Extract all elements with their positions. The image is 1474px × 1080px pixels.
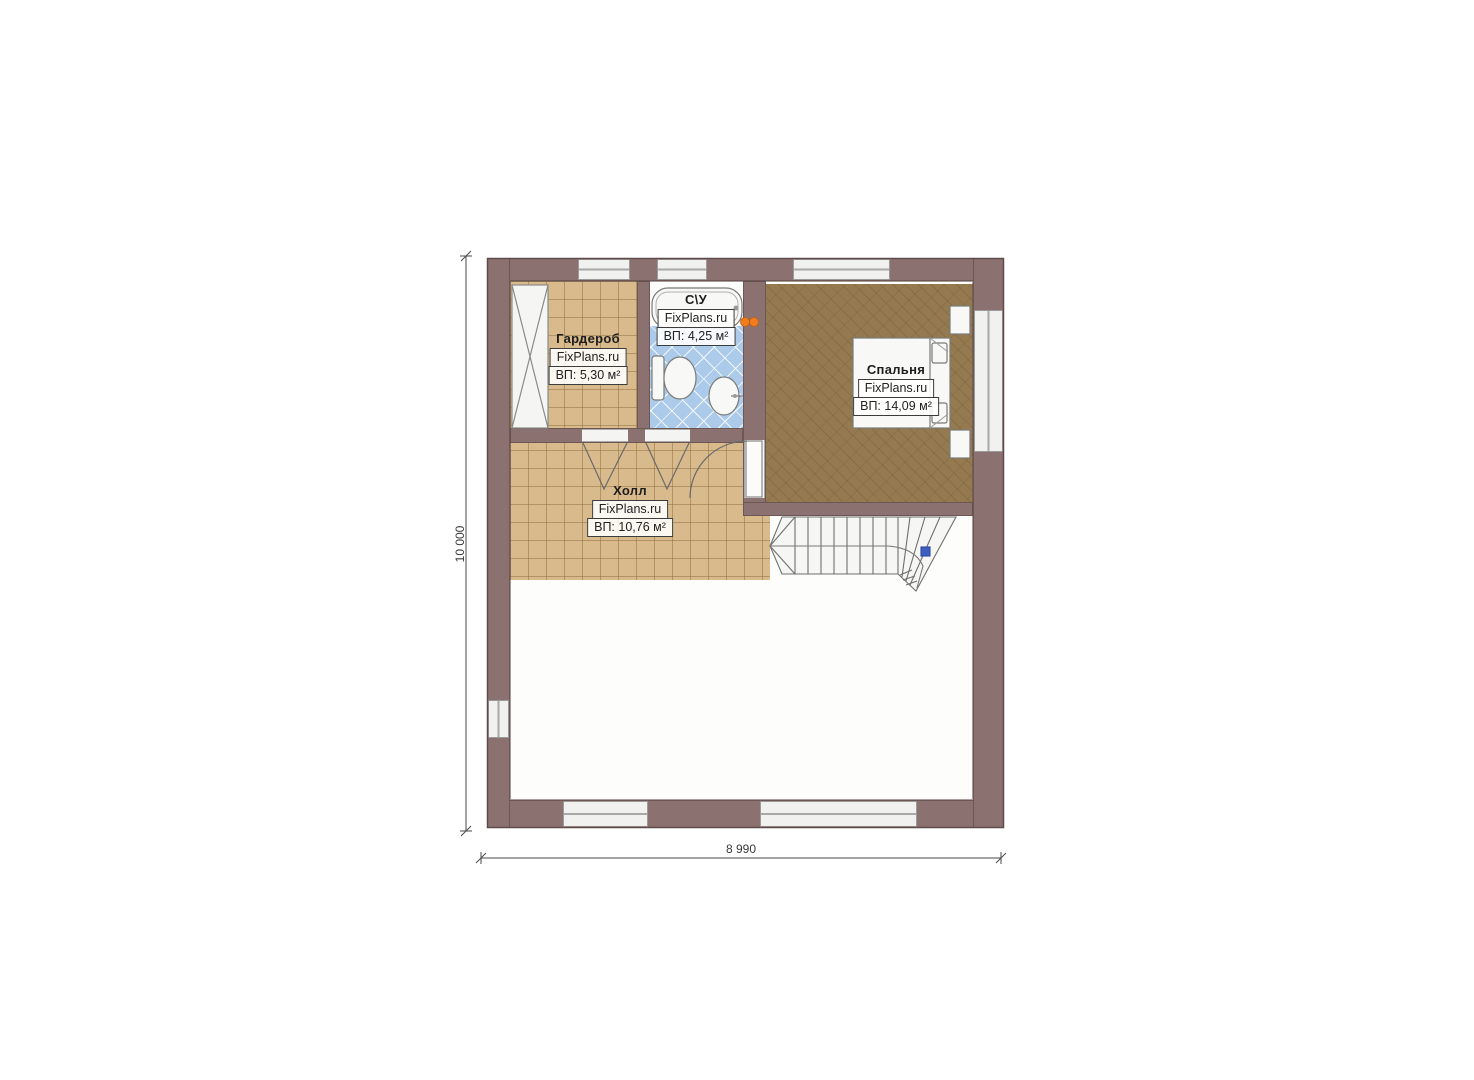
dimension-label-width: 8 990 <box>711 842 771 856</box>
wall-bedroom-bottom <box>743 502 973 516</box>
door-opening-bedroom <box>744 440 765 498</box>
hall-area: ВП: 10,76 м² <box>587 518 673 537</box>
bedroom-watermark: FixPlans.ru <box>858 379 935 398</box>
door-opening-wardrobe <box>582 429 628 442</box>
window-right-bedroom <box>974 310 1003 452</box>
bathroom-area: ВП: 4,25 м² <box>657 327 736 346</box>
floor-plan-canvas: Гардероб FixPlans.ru ВП: 5,30 м² С\У Fix… <box>0 0 1474 1080</box>
wardrobe-watermark: FixPlans.ru <box>550 348 627 367</box>
window-left-wall <box>488 700 509 738</box>
wardrobe-name: Гардероб <box>556 331 620 346</box>
hall-watermark: FixPlans.ru <box>592 500 669 519</box>
bedroom-name: Спальня <box>867 362 925 377</box>
wall-wardrobe-bathroom <box>637 281 650 432</box>
wall-left <box>487 258 510 828</box>
dimension-label-height: 10 000 <box>453 514 467 574</box>
window-top-bedroom <box>793 259 890 280</box>
wall-top <box>487 258 1004 281</box>
bedroom-area: ВП: 14,09 м² <box>853 397 939 416</box>
wardrobe-area: ВП: 5,30 м² <box>549 366 628 385</box>
window-top-bathroom <box>657 259 707 280</box>
bathroom-label: С\У FixPlans.ru ВП: 4,25 м² <box>657 292 736 346</box>
window-bottom-right <box>760 801 917 827</box>
hall-name: Холл <box>613 483 647 498</box>
bedroom-label: Спальня FixPlans.ru ВП: 14,09 м² <box>853 362 939 416</box>
window-bottom-left <box>563 801 648 827</box>
bathroom-watermark: FixPlans.ru <box>658 309 735 328</box>
wardrobe-label: Гардероб FixPlans.ru ВП: 5,30 м² <box>549 331 628 385</box>
bathroom-name: С\У <box>685 292 707 307</box>
window-top-wardrobe <box>578 259 630 280</box>
door-opening-bathroom <box>645 429 690 442</box>
hall-label: Холл FixPlans.ru ВП: 10,76 м² <box>587 483 673 537</box>
